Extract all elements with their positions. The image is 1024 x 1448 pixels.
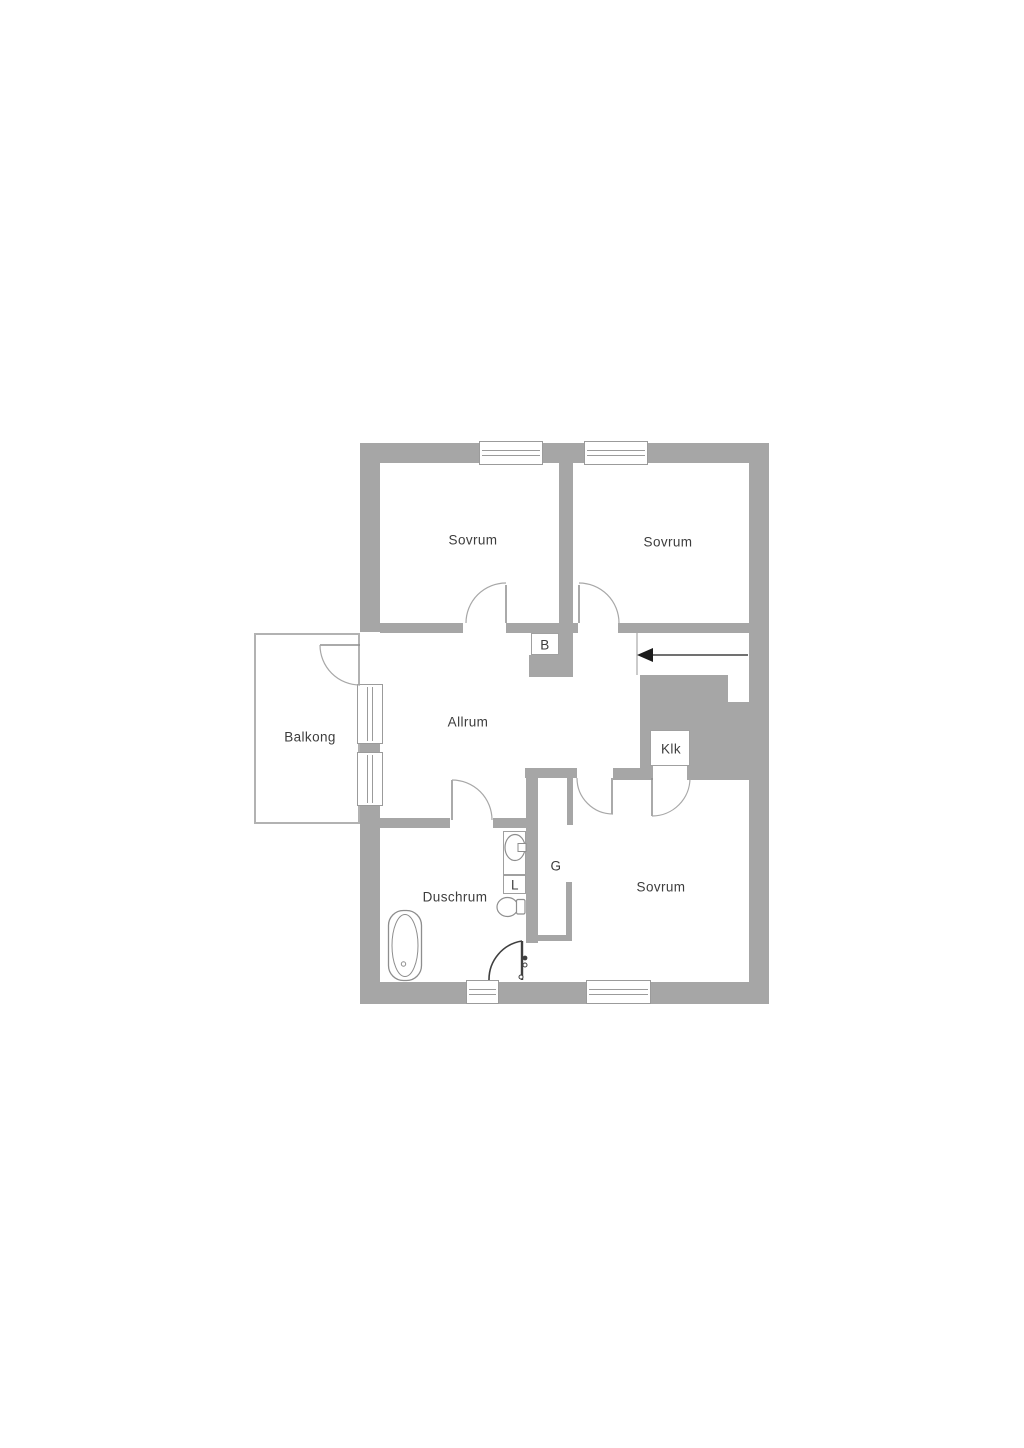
bathtub-outer [389,911,422,981]
room-label-bedroom-top-right: Sovrum [644,535,693,550]
door-arcs [320,583,690,820]
toilet-cistern [517,900,526,915]
room-label-walk-in-closet: Klk [661,742,681,757]
door-arc-balcony [320,645,360,685]
sink [505,835,526,861]
room-label-niche-b: B [540,638,549,653]
door-arc-closet [652,778,690,816]
door-arc-shower-entry [489,941,522,980]
door-leaves [320,585,652,820]
bathtub [389,911,422,981]
room-label-linen-closet: L [511,878,519,893]
sink-tap-icon [518,844,526,852]
room-label-wardrobe: G [551,859,562,874]
door-arc-bedroom-3 [577,778,613,814]
room-label-bedroom-top-left: Sovrum [449,533,498,548]
plan-overlay [0,0,1024,1448]
door-hinge-icon [519,975,523,979]
door-arc-bedroom-2 [579,583,619,623]
room-label-shower-room: Duschrum [423,890,488,905]
stairs-arrow-icon [637,648,748,662]
door-handle-icon [523,963,527,967]
toilet [497,898,525,917]
door-handle-icon [523,956,528,961]
room-label-bedroom-bottom: Sovrum [637,880,686,895]
stairs-arrow-head [637,648,653,662]
door-arc-shower-top [452,780,492,820]
toilet-bowl [497,898,518,917]
room-label-balcony: Balkong [284,730,336,745]
door-arc-bedroom-1 [466,583,506,623]
floor-plan: Sovrum Sovrum Allrum Balkong B Klk G L D… [0,0,1024,1448]
shower-entry-door [489,941,527,980]
room-label-living-room: Allrum [448,715,489,730]
